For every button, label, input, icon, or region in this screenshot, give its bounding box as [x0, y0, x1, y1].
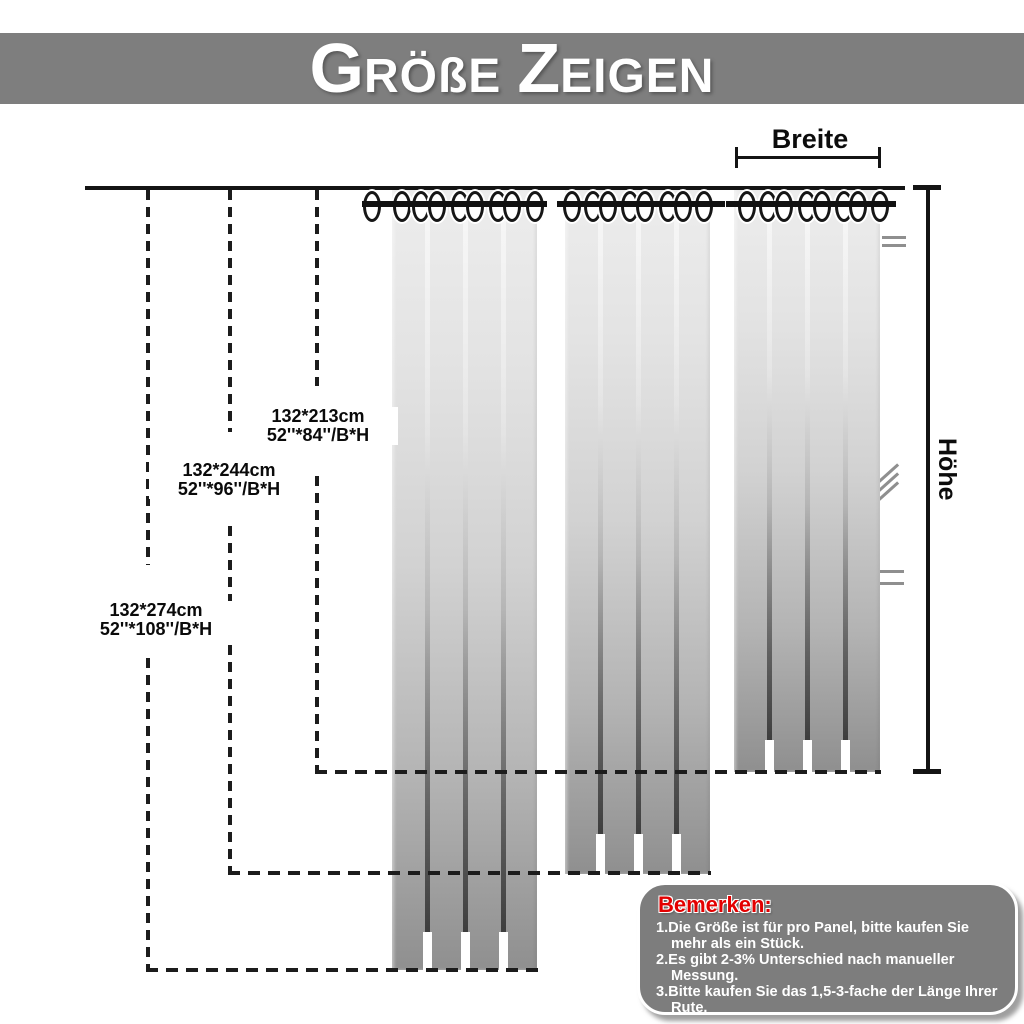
fold-mark-top [882, 236, 906, 239]
size-label-274-cm: 132*274cm [76, 601, 236, 620]
pleat-shadow [843, 216, 848, 740]
height-label: Höhe [932, 438, 961, 501]
pleat-shadow [674, 216, 679, 834]
grommet-bar [557, 201, 725, 207]
fold-mark-bottom [880, 570, 904, 573]
title-word-groesse: GRÖßE [310, 79, 502, 96]
width-bracket-line [737, 156, 881, 159]
hem-slit [672, 834, 681, 874]
pleat-shadow [767, 216, 772, 740]
pleat-shadow [598, 216, 603, 834]
grommet-bar [726, 201, 896, 207]
grommet-row [734, 191, 880, 221]
size-label-213-cm: 132*213cm [238, 407, 398, 426]
hem-slit [634, 834, 643, 874]
width-bracket-right-tick [878, 147, 881, 168]
hem-level-line-274 [146, 968, 538, 972]
size-label-244-cm: 132*244cm [149, 461, 309, 480]
size-label-274: 132*274cm 52''*108''/B*H [76, 601, 236, 639]
size-guide-line-213 [315, 190, 319, 386]
size-guide-infographic: GRÖßEZEIGEN Breite [0, 0, 1024, 1024]
grommet-row [565, 191, 710, 221]
pleat-shadow [805, 216, 810, 740]
note-item-2: 2.Es gibt 2-3% Unterschied nach manuelle… [656, 953, 1003, 985]
hem-level-line-213 [315, 770, 881, 774]
pleat-shadow [636, 216, 641, 834]
pleat-shadow [463, 216, 468, 932]
pleat-shadow [501, 216, 506, 932]
note-item-1: 1.Die Größe ist für pro Panel, bitte kau… [656, 921, 1003, 953]
notes-title: Bemerken: [658, 892, 1003, 918]
curtain-panel-long-274 [392, 190, 537, 970]
fold-mark-bottom [880, 582, 904, 585]
notes-box: Bemerken: 1.Die Größe ist für pro Panel,… [637, 882, 1018, 1015]
width-label: Breite [735, 124, 885, 155]
height-measure-bottom-cap [913, 769, 941, 774]
page-title: GRÖßEZEIGEN [0, 37, 1024, 104]
size-guide-line-274 [146, 658, 150, 970]
size-label-244: 132*244cm 52''*96''/B*H [149, 461, 309, 499]
pleat-shadow [425, 216, 430, 932]
hem-slit [841, 740, 850, 772]
height-measure-bar [926, 190, 930, 770]
size-label-274-inch: 52''*108''/B*H [76, 620, 236, 639]
hem-slit [596, 834, 605, 874]
hem-slit [423, 932, 432, 970]
size-guide-line-244 [228, 190, 232, 432]
grommet-row [392, 191, 537, 221]
curtain-panel-short-213 [734, 190, 880, 772]
hem-slit [461, 932, 470, 970]
size-label-213: 132*213cm 52''*84''/B*H [238, 407, 398, 445]
grommet-bar [362, 201, 547, 207]
fold-mark-top [882, 244, 906, 247]
size-guide-line-213 [315, 476, 319, 772]
size-guide-line-274 [146, 190, 150, 565]
width-bracket-left-tick [735, 147, 738, 168]
hem-level-line-244 [228, 871, 711, 875]
note-item-3: 3.Bitte kaufen Sie das 1,5-3-fache der L… [656, 985, 1003, 1017]
hem-slit [765, 740, 774, 772]
size-label-213-inch: 52''*84''/B*H [238, 426, 398, 445]
size-label-244-inch: 52''*96''/B*H [149, 480, 309, 499]
hem-slit [803, 740, 812, 772]
hem-slit [499, 932, 508, 970]
size-guide-line-244 [228, 526, 232, 873]
title-word-zeigen: ZEIGEN [517, 79, 714, 96]
